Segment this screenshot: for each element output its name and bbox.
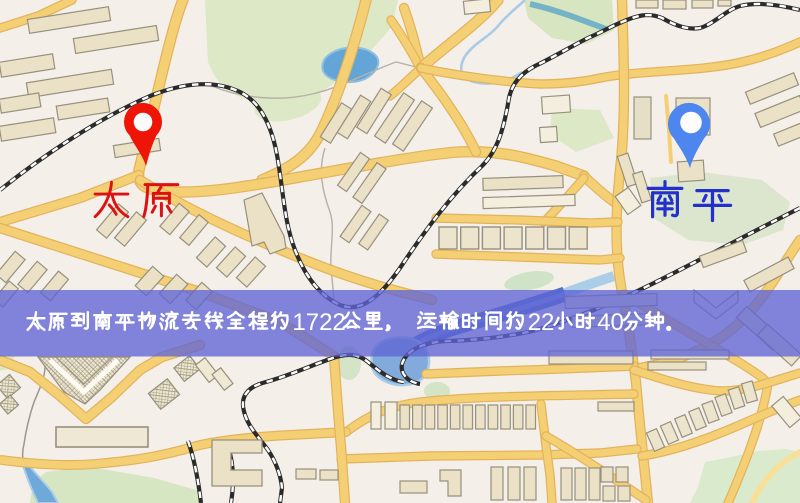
svg-text:40: 40	[597, 309, 624, 336]
svg-text:22: 22	[528, 309, 555, 336]
svg-text:1722: 1722	[292, 309, 345, 336]
